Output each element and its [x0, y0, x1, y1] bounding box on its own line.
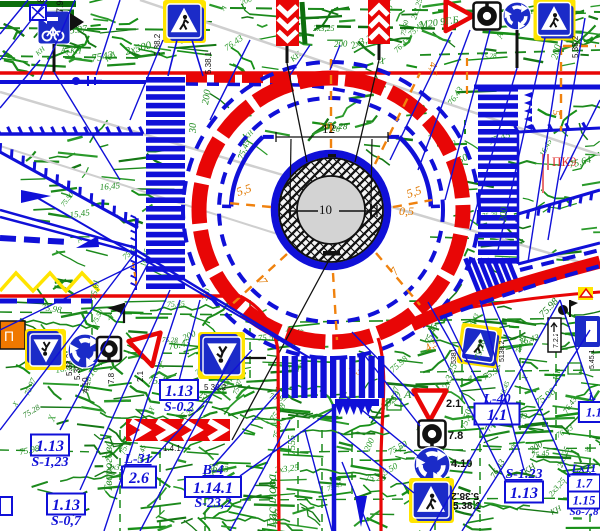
svg-text:1.13: 1.13 — [36, 438, 64, 455]
svg-text:Творогова: Творогова — [101, 441, 115, 492]
svg-text:5,5: 5,5 — [235, 181, 254, 199]
svg-text:15,45: 15,45 — [69, 207, 91, 220]
svg-text:А: А — [403, 387, 412, 401]
svg-text:5,5: 5,5 — [405, 183, 424, 201]
svg-text:1.1: 1.1 — [487, 407, 507, 424]
svg-text:S-0,7: S-0,7 — [51, 514, 82, 529]
svg-text:5.38.1: 5.38.1 — [204, 51, 213, 74]
svg-text:2.6: 2.6 — [128, 470, 149, 487]
svg-text:В-4: В-4 — [202, 463, 224, 478]
svg-text:7: 7 — [256, 275, 271, 289]
svg-text:75.28: 75.28 — [21, 403, 41, 420]
svg-text:200: 200 — [498, 206, 510, 222]
svg-text:5138.2: 5138.2 — [499, 340, 506, 362]
svg-text:200: 200 — [362, 436, 377, 453]
svg-text:10: 10 — [319, 202, 332, 217]
svg-text:KH: KH — [548, 503, 564, 517]
svg-text:4.10: 4.10 — [451, 458, 472, 470]
svg-text:7: 7 — [387, 264, 402, 278]
svg-text:2x3,25: 2x3,25 — [547, 476, 568, 498]
svg-text:75.50: 75.50 — [91, 308, 106, 326]
svg-text:200: 200 — [200, 89, 213, 106]
svg-text:5381: 5381 — [451, 348, 458, 364]
svg-text:1.13: 1.13 — [52, 497, 80, 514]
svg-text:Кн: Кн — [552, 368, 563, 381]
svg-text:16,45: 16,45 — [99, 180, 121, 192]
svg-text:Lх11: Lх11 — [571, 461, 597, 475]
svg-text:Sо-7,8: Sо-7,8 — [569, 506, 599, 518]
svg-text:2.1: 2.1 — [446, 398, 461, 410]
svg-text:1.1: 1.1 — [586, 405, 600, 420]
svg-text:S-23,2: S-23,2 — [195, 496, 232, 511]
svg-text:200: 200 — [334, 39, 348, 49]
svg-text:75.98: 75.98 — [388, 353, 410, 374]
svg-text:30: 30 — [188, 123, 199, 134]
svg-text:S-0.2: S-0.2 — [164, 400, 194, 415]
svg-text:7555: 7555 — [287, 435, 298, 455]
svg-text:Гасилова: Гасилова — [265, 474, 280, 529]
svg-text:75.28: 75.28 — [162, 336, 178, 344]
svg-text:1.7: 1.7 — [576, 476, 593, 491]
svg-text:1.13: 1.13 — [165, 383, 193, 400]
svg-text:2.1: 2.1 — [136, 370, 145, 382]
svg-text:1.14.1: 1.14.1 — [193, 480, 233, 497]
svg-text:4.10: 4.10 — [81, 377, 90, 393]
svg-text:П: П — [4, 328, 14, 344]
svg-text:200: 200 — [239, 0, 253, 7]
svg-text:7.9: 7.9 — [55, 0, 65, 13]
svg-text:7.8: 7.8 — [107, 372, 116, 384]
svg-text:75,50: 75,50 — [458, 408, 473, 431]
svg-text:2х3,25: 2х3,25 — [440, 362, 460, 391]
svg-text:7.2.2: 7.2.2 — [553, 332, 560, 348]
svg-text:5.45.1: 5.45.1 — [589, 349, 596, 369]
svg-text:7542: 7542 — [90, 49, 114, 65]
svg-text:0,5: 0,5 — [399, 204, 414, 218]
svg-text:12: 12 — [322, 121, 335, 136]
svg-text:X: X — [46, 413, 59, 424]
svg-text:7.8: 7.8 — [448, 430, 463, 442]
svg-text:1.13: 1.13 — [510, 485, 538, 502]
svg-text:75.98: 75.98 — [537, 296, 561, 320]
svg-text:5.38.2: 5.38.2 — [451, 490, 479, 501]
svg-text:S-1,23: S-1,23 — [32, 455, 69, 470]
